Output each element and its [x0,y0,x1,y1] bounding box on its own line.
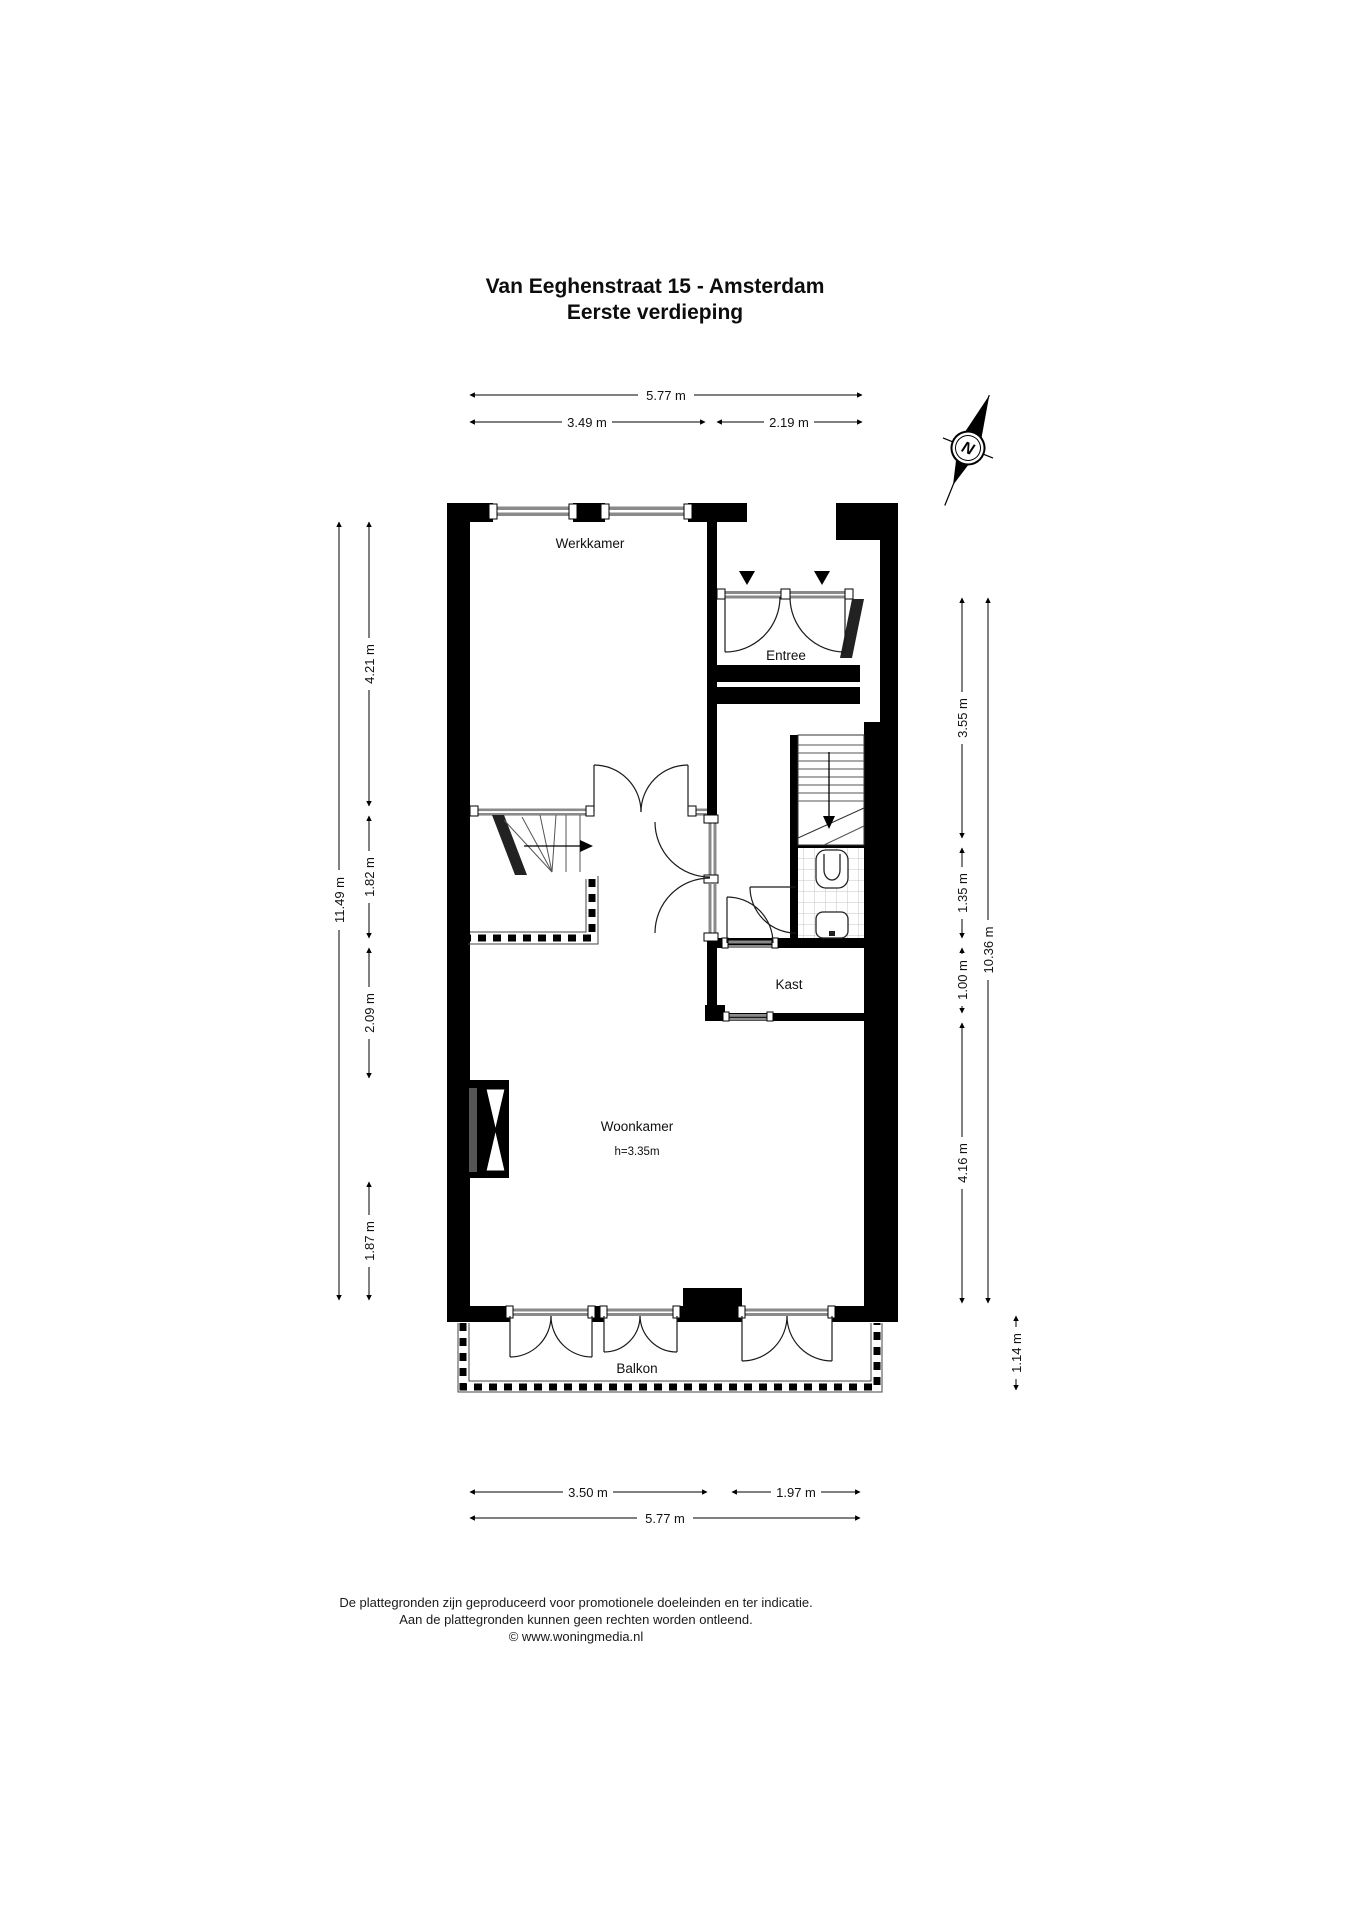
svg-text:11.49 m: 11.49 m [332,877,347,923]
dim-left-2: 1.82 m [362,816,377,938]
svg-text:10.36 m: 10.36 m [981,927,996,974]
dimension-lines: 5.77 m 3.49 m 2.19 m 11.49 m [332,388,1024,1526]
svg-text:3.50 m: 3.50 m [568,1485,608,1500]
dim-right-3: 1.00 m [955,948,970,1013]
svg-text:1.97 m: 1.97 m [776,1485,816,1500]
compass-rose-icon: N [920,385,1015,516]
svg-text:4.21 m: 4.21 m [362,644,377,684]
svg-text:2.19 m: 2.19 m [769,415,809,430]
balcony-door-sills [506,1306,835,1318]
dim-right-1: 3.55 m [955,598,970,838]
winder-staircase [492,815,593,875]
room-labels: Werkkamer Entree Kast Woonkamer h=3.35m … [556,536,806,1376]
svg-text:1.14 m: 1.14 m [1009,1333,1024,1373]
svg-text:3.49 m: 3.49 m [567,415,607,430]
sink-icon [816,912,848,938]
dim-left-3: 2.09 m [362,948,377,1078]
label-ceiling-height: h=3.35m [614,1146,659,1158]
svg-text:3.55 m: 3.55 m [955,698,970,738]
dim-top-total: 5.77 m [470,388,862,403]
dim-left-1: 4.21 m [362,522,377,806]
main-staircase [798,735,864,845]
svg-text:2.09 m: 2.09 m [362,993,377,1033]
stair-up-arrow-icon [524,840,593,852]
svg-text:1.82 m: 1.82 m [362,857,377,897]
svg-text:4.16 m: 4.16 m [955,1143,970,1183]
svg-text:1.00 m: 1.00 m [955,960,970,1000]
footer-copyright: © www.woningmedia.nl [0,1628,1152,1645]
dim-bottom-total: 5.77 m [470,1511,860,1526]
dim-left-4: 1.87 m [362,1182,377,1300]
svg-text:5.77 m: 5.77 m [646,388,686,403]
stairwell-void-edge [468,876,598,944]
dim-bottom-right: 1.97 m [732,1485,860,1500]
svg-text:1.35 m: 1.35 m [955,873,970,913]
svg-text:5.77 m: 5.77 m [645,1511,685,1526]
dim-top-right: 2.19 m [717,415,862,430]
floorplan-page: Van Eeghenstraat 15 - Amsterdam Eerste v… [0,0,1358,1920]
entrance-arrow-icons [739,571,830,585]
toilet-icon [816,850,848,888]
dim-left-total: 11.49 m [332,522,347,1300]
balcony-railing [458,1323,882,1392]
bathroom [798,848,864,938]
label-entree: Entree [766,648,806,663]
werkkamer-glass-wall [470,806,707,816]
label-kast: Kast [775,977,802,992]
dim-right-4: 4.16 m [955,1023,970,1303]
label-woonkamer: Woonkamer [601,1119,674,1134]
dim-top-left: 3.49 m [470,415,705,430]
footer-line-1: De plattegronden zijn geproduceerd voor … [0,1594,1152,1611]
dim-balcony-depth: 1.14 m [1009,1316,1024,1390]
dim-right-2: 1.35 m [955,848,970,938]
svg-text:1.87 m: 1.87 m [362,1221,377,1261]
footer-line-2: Aan de plattegronden kunnen geen rechten… [0,1611,1152,1628]
kast-door-sills [722,938,778,1021]
label-balkon: Balkon [616,1361,657,1376]
entry-door-panel [840,599,864,658]
label-werkkamer: Werkkamer [556,536,625,551]
dim-right-total: 10.36 m [981,598,996,1303]
footer-disclaimer: De plattegronden zijn geproduceerd voor … [0,1594,1152,1645]
dim-bottom-left: 3.50 m [470,1485,707,1500]
